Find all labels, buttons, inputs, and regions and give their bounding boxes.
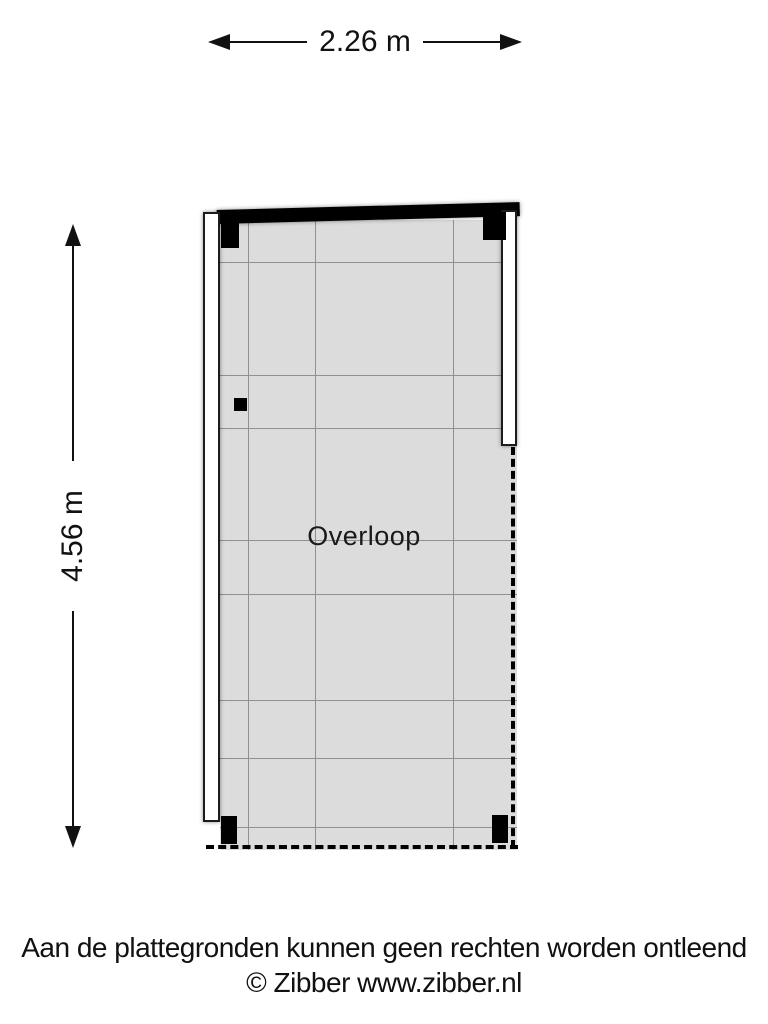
height-dimension-label-box: 4.56 m: [58, 461, 88, 611]
column-top-right: [483, 212, 506, 240]
column-top-left: [221, 222, 239, 248]
arrowhead-right-icon: [500, 34, 522, 50]
arrowhead-left-icon: [208, 34, 230, 50]
column-bottom-right: [492, 815, 508, 843]
grid-line: [220, 700, 517, 701]
arrowhead-up-icon: [65, 224, 81, 246]
dimension-line: [72, 611, 74, 826]
floorplan-page: 2.26 m 4.56 m: [0, 0, 768, 1024]
column-bottom-left: [221, 816, 237, 844]
grid-line: [220, 428, 517, 429]
footer-copyright: © Zibber www.zibber.nl: [0, 967, 768, 999]
grid-line: [220, 827, 517, 828]
room-label: Overloop: [264, 521, 464, 552]
arrowhead-down-icon: [65, 826, 81, 848]
grid-line: [248, 220, 249, 850]
footer-disclaimer: Aan de plattegronden kunnen geen rechten…: [0, 932, 768, 964]
dashed-boundary-right: [511, 447, 515, 848]
dimension-line: [230, 41, 307, 43]
width-dimension: 2.26 m: [208, 28, 522, 56]
column-mid-left: [234, 398, 247, 411]
left-wall: [203, 212, 220, 822]
dimension-line: [423, 41, 500, 43]
grid-line: [220, 594, 517, 595]
grid-line: [220, 758, 517, 759]
height-dimension: 4.56 m: [58, 224, 88, 848]
width-dimension-label: 2.26 m: [307, 25, 423, 59]
dashed-boundary-bottom: [206, 845, 518, 849]
footer: Aan de plattegronden kunnen geen rechten…: [0, 932, 768, 999]
grid-line: [220, 375, 517, 376]
height-dimension-label: 4.56 m: [56, 490, 90, 582]
right-wall: [501, 210, 517, 446]
grid-line: [220, 262, 517, 263]
dimension-line: [72, 246, 74, 461]
